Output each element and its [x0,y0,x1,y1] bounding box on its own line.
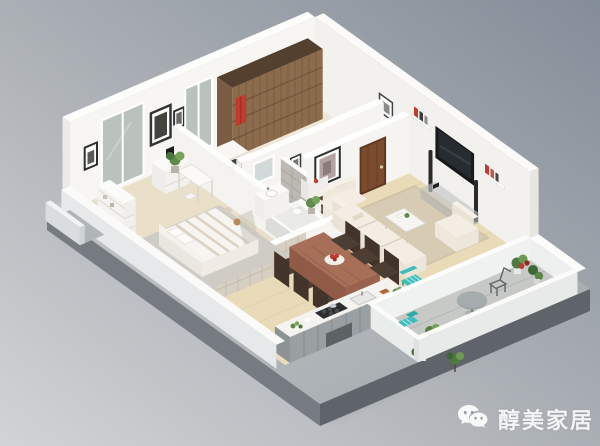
entry-door [361,138,386,195]
master-wall-art-small [85,143,97,170]
master-wall-art-large [151,105,171,145]
apartment-render [0,0,600,446]
basket [234,219,241,226]
watermark: 醇美家居 [457,403,594,435]
screenshot-3d-floorplan: 醇美家居 [0,0,600,446]
stool [223,207,232,213]
wechat-icon [457,404,491,434]
watermark-label: 醇美家居 [498,403,594,435]
